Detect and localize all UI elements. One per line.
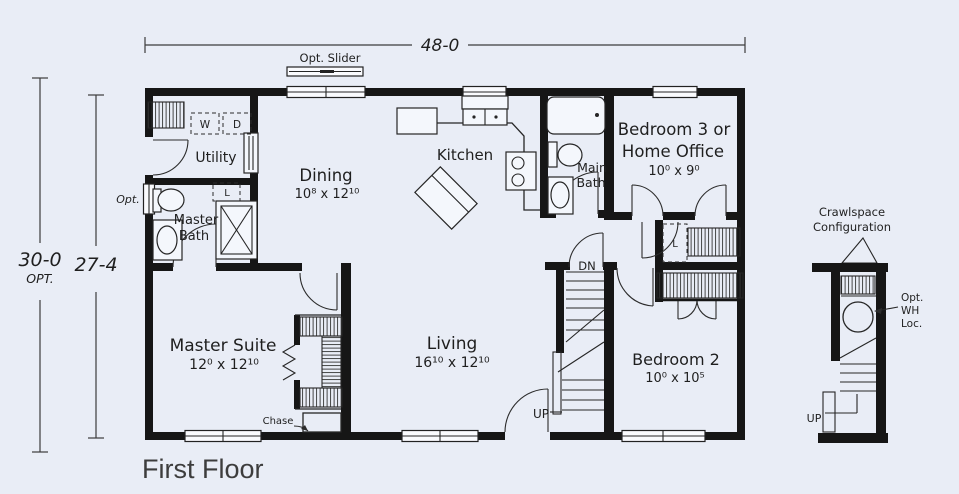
linen-hall-closet: L (663, 224, 687, 262)
dimension-depth-standard: 27-4 (74, 95, 117, 438)
chase: Chase (263, 413, 341, 432)
crawlspace-pointer (842, 238, 877, 263)
bedroom2-closet (655, 273, 745, 300)
door-master-suite-entry (300, 273, 337, 310)
toilet-tank (548, 142, 557, 167)
window-master-bath-optional: Opt. (116, 184, 154, 214)
stairs-main: DN UP (533, 259, 604, 421)
room-master-bath-1: Master (174, 213, 219, 228)
wh-label-1: Opt. (901, 292, 923, 304)
room-bedroom3-dims: 10⁰ x 9⁰ (648, 164, 699, 179)
window-bedroom2 (622, 431, 705, 442)
washer-box: W (191, 113, 219, 134)
stairs-up-label: UP (533, 407, 549, 421)
crawlspace-configuration: Crawlspace Configuration Opt. WH Loc. UP (807, 205, 924, 443)
floor-plan-drawing: 48-0 30-0 OPT. 27-4 Opt. Slider (0, 0, 959, 494)
master-closet-bifold (283, 345, 295, 380)
room-bedroom3-1: Bedroom 3 or (618, 120, 731, 139)
crawlspace-up-label: UP (807, 412, 822, 425)
dim-width-label: 48-0 (421, 36, 460, 56)
opt-slider-label: Opt. Slider (300, 51, 361, 65)
opt-window-label: Opt. (116, 193, 139, 206)
refrigerator (397, 108, 437, 134)
window-living (402, 431, 478, 442)
dimension-width-overall: 48-0 (145, 36, 745, 56)
dimension-depth-optional: 30-0 OPT. (18, 78, 61, 452)
room-master-bath-2: Bath (179, 229, 209, 244)
utility-shelving (148, 102, 184, 128)
room-living-dims: 16¹⁰ x 12¹⁰ (414, 355, 490, 371)
master-closet (283, 315, 342, 409)
crawlspace-title-1: Crawlspace (819, 205, 885, 219)
dim-depth-opt-suffix: OPT. (26, 271, 54, 286)
window-bedroom3 (653, 87, 697, 98)
chase-label: Chase (263, 416, 294, 427)
svg-text:L: L (224, 188, 230, 199)
door-bedroom3-left (632, 185, 663, 216)
room-dining-dims: 10⁸ x 12¹⁰ (295, 187, 360, 202)
door-utility-exterior (153, 140, 188, 175)
room-master-suite: Master Suite (170, 336, 277, 356)
dryer-box: D (223, 113, 251, 134)
hall-closet-shelf (688, 228, 740, 256)
range-stove (506, 152, 536, 190)
door-utility-pocket (244, 133, 258, 173)
dim-depth-std-label: 27-4 (74, 254, 117, 276)
dim-depth-opt-label: 30-0 (18, 249, 61, 271)
window-master-suite (185, 431, 261, 442)
room-bedroom2-dims: 10⁰ x 10⁵ (645, 371, 704, 386)
page-title: First Floor (142, 454, 264, 484)
room-living: Living (427, 334, 478, 354)
kitchen-island (415, 167, 477, 229)
svg-text:W: W (200, 119, 211, 131)
svg-text:D: D (233, 119, 241, 131)
opt-slider-window: Opt. Slider (287, 51, 363, 76)
water-heater (843, 302, 873, 332)
shower (216, 201, 257, 259)
room-kitchen: Kitchen (437, 146, 493, 164)
linen-master-bath: L (213, 183, 240, 201)
crawlspace-title-2: Configuration (813, 220, 891, 234)
main-bath-fixtures (547, 97, 605, 214)
room-utility: Utility (195, 150, 236, 166)
stairs-dn-label: DN (578, 259, 595, 273)
floor-plan-page: 48-0 30-0 OPT. 27-4 Opt. Slider (0, 0, 959, 494)
vanity-sink (157, 226, 177, 254)
room-main-bath-2: Bath (576, 175, 605, 190)
kitchen-sink (462, 96, 508, 125)
door-bedroom2-entry (617, 268, 653, 306)
door-bedroom3-right (695, 185, 726, 216)
svg-text:L: L (672, 239, 678, 250)
window-dining (287, 87, 365, 98)
wh-label-2: WH (901, 305, 919, 317)
room-dining: Dining (299, 166, 352, 185)
toilet-bowl (158, 189, 184, 211)
room-bedroom3-2: Home Office (622, 142, 724, 161)
room-main-bath-1: Main (577, 160, 607, 175)
door-bedroom2-closet-double (678, 300, 716, 319)
room-master-suite-dims: 12⁰ x 12¹⁰ (189, 357, 259, 373)
sink-bowl (551, 182, 569, 208)
room-bedroom2: Bedroom 2 (632, 350, 720, 369)
wh-label-3: Loc. (901, 318, 922, 330)
